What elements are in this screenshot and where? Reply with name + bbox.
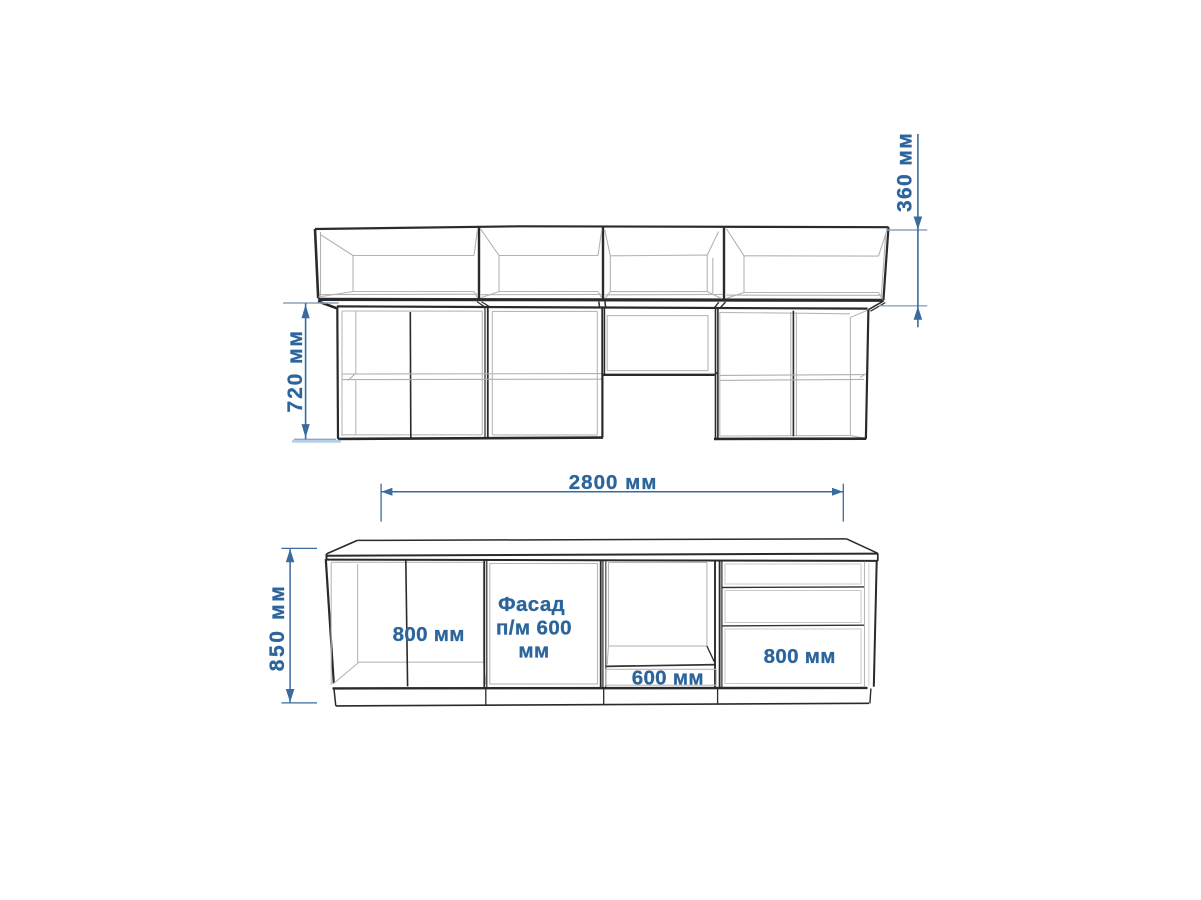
svg-text:360 мм: 360 мм xyxy=(894,132,917,212)
svg-text:600 мм: 600 мм xyxy=(632,667,704,690)
svg-text:п/м 600: п/м 600 xyxy=(496,616,572,639)
svg-text:800 мм: 800 мм xyxy=(764,645,836,668)
svg-text:мм: мм xyxy=(518,639,549,662)
svg-text:720 мм: 720 мм xyxy=(284,329,307,412)
svg-text:Фасад: Фасад xyxy=(498,593,565,616)
svg-text:2800 мм: 2800 мм xyxy=(569,471,658,494)
svg-text:800 мм: 800 мм xyxy=(393,623,465,646)
svg-text:850 мм: 850 мм xyxy=(266,584,289,672)
